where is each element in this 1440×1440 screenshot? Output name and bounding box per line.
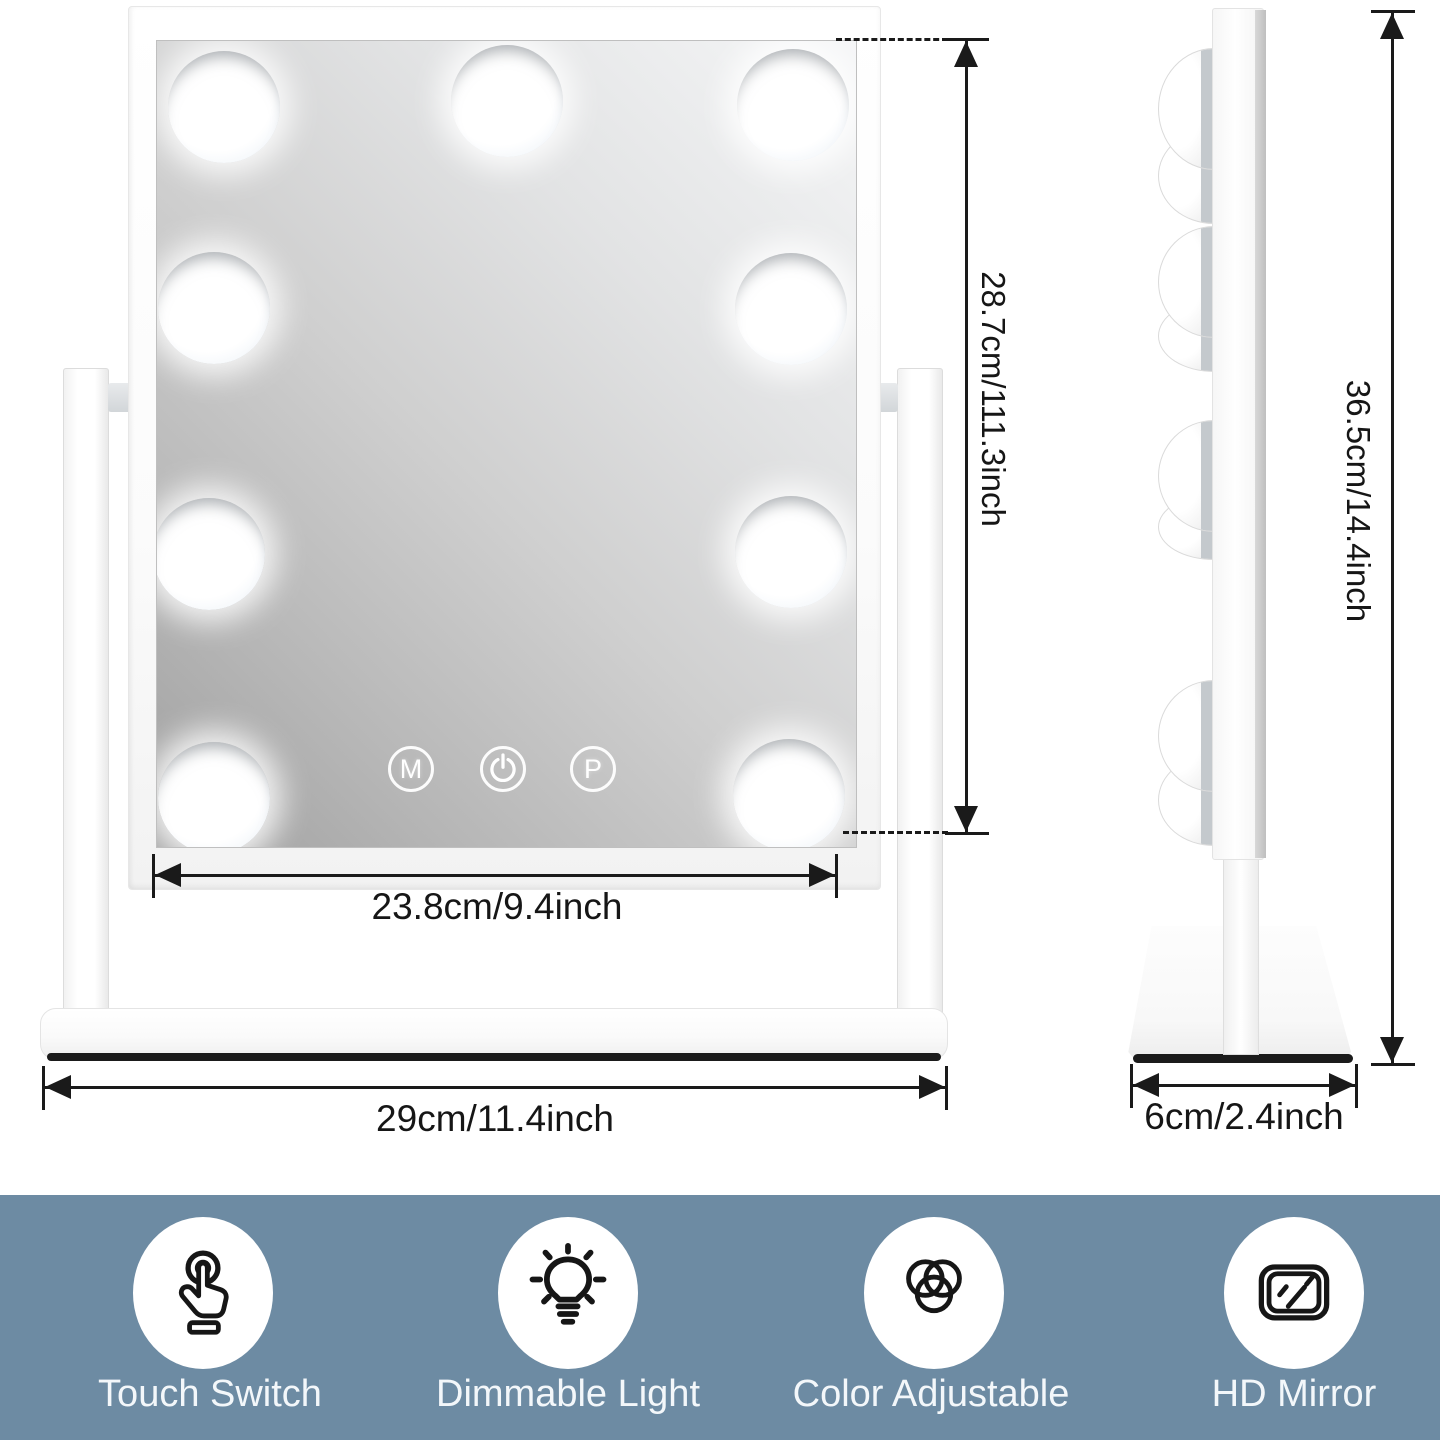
led-bulb	[735, 496, 847, 608]
feature-label: HD Mirror	[1212, 1373, 1377, 1416]
feature-circle	[133, 1217, 273, 1369]
dimmable-light-icon	[520, 1241, 616, 1346]
stand-post-left	[63, 368, 109, 1038]
base-width-label: 29cm/11.4inch	[376, 1098, 614, 1140]
led-bulb	[737, 49, 849, 161]
leader-line-bottom	[843, 831, 948, 834]
product-dimension-diagram: M P	[0, 0, 1440, 1440]
hd-mirror-icon	[1246, 1241, 1342, 1346]
leader-line-top	[836, 38, 948, 41]
mirror-surface: M P	[156, 40, 857, 848]
base-front	[40, 1008, 948, 1060]
led-bulb	[735, 253, 847, 365]
touch-switch-icon	[155, 1241, 251, 1346]
feature-circle	[1224, 1217, 1364, 1369]
base-depth-label: 6cm/2.4inch	[1144, 1096, 1344, 1138]
dimension-total-height	[1371, 10, 1415, 1066]
stand-post-right	[897, 368, 943, 1038]
led-bulb	[168, 51, 280, 163]
feature-label: Touch Switch	[98, 1373, 322, 1416]
mirror-frame: M P	[128, 6, 881, 890]
feature-circle	[864, 1217, 1004, 1369]
mirror-height-label: 28.7cm/111.3inch	[974, 259, 1012, 539]
touch-button-power	[480, 746, 526, 792]
feature-circle	[498, 1217, 638, 1369]
led-bulb	[158, 252, 270, 364]
total-height-label: 36.5cm/14.4inch	[1339, 370, 1377, 632]
feature-label: Dimmable Light	[436, 1373, 700, 1416]
touch-button-preset: P	[570, 746, 616, 792]
led-bulb	[733, 739, 845, 848]
feature-band: Touch Switch Dimmable Light	[0, 1195, 1440, 1440]
color-adjustable-icon	[886, 1241, 982, 1346]
feature-label: Color Adjustable	[793, 1373, 1070, 1416]
led-bulb	[158, 742, 270, 848]
mirror-glass-edge	[1255, 10, 1266, 858]
power-icon	[488, 752, 518, 787]
stand-post-side	[1223, 855, 1259, 1055]
led-bulb	[451, 45, 563, 157]
mirror-width-label: 23.8cm/9.4inch	[372, 886, 623, 928]
touch-button-mode: M	[388, 746, 434, 792]
base-side-edge	[1133, 1054, 1353, 1063]
led-bulb	[156, 498, 265, 610]
